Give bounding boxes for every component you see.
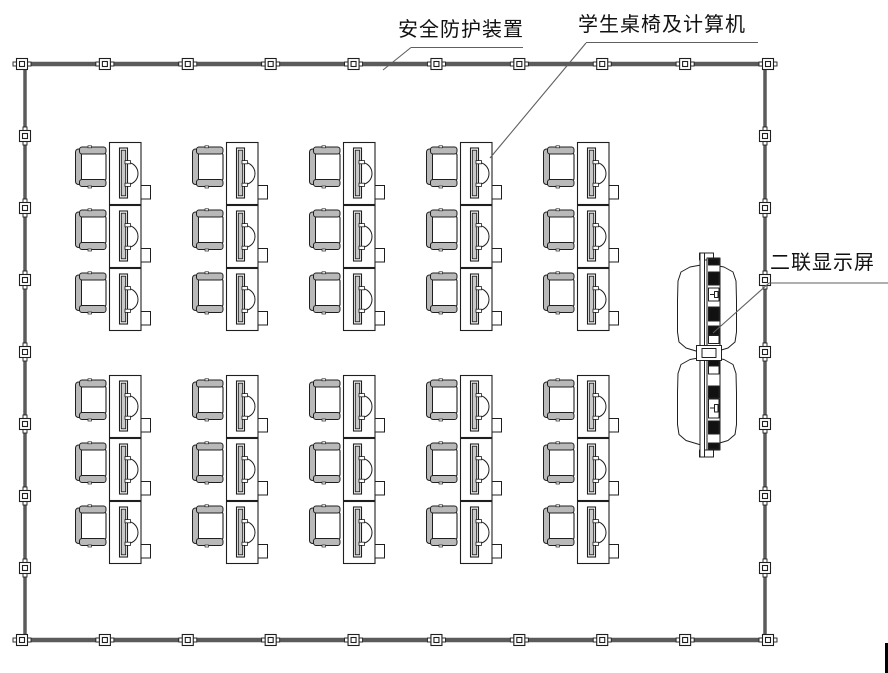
wall-post xyxy=(262,59,280,70)
desk-unit xyxy=(427,439,502,501)
wall-post xyxy=(179,635,197,646)
floor-plan-drawing xyxy=(0,0,888,673)
desk-unit xyxy=(427,376,502,438)
desk-unit xyxy=(76,502,151,564)
label-dual-display-screen: 二联显示屏 xyxy=(770,251,875,274)
wall-post xyxy=(510,59,528,70)
desk-unit xyxy=(193,439,268,501)
desk-unit xyxy=(544,206,619,268)
desk-unit xyxy=(193,143,268,205)
desk-unit xyxy=(193,269,268,331)
label-safety-protection-device: 安全防护装置 xyxy=(398,18,524,41)
label-student-desks-computers: 学生桌椅及计算机 xyxy=(578,13,746,36)
wall-post xyxy=(13,59,31,70)
desk-unit xyxy=(544,439,619,501)
wall-post xyxy=(13,635,31,646)
desk-unit xyxy=(310,376,385,438)
desk-unit xyxy=(193,376,268,438)
wall-post xyxy=(510,635,528,646)
floor-plan-page: 安全防护装置 学生桌椅及计算机 二联显示屏 xyxy=(0,0,888,673)
wall-post xyxy=(20,559,31,577)
wall-post xyxy=(760,487,771,505)
desk-unit xyxy=(76,143,151,205)
wall-post xyxy=(760,343,771,361)
desk-unit xyxy=(310,143,385,205)
wall-post xyxy=(593,59,611,70)
desk-unit xyxy=(310,502,385,564)
wall-post xyxy=(759,59,777,70)
desk-unit xyxy=(310,206,385,268)
wall-post xyxy=(96,59,114,70)
wall-post xyxy=(760,415,771,433)
wall-post xyxy=(20,271,31,289)
wall-post xyxy=(427,59,445,70)
wall-post xyxy=(676,59,694,70)
wall-post xyxy=(760,559,771,577)
desk-unit xyxy=(310,269,385,331)
desk-unit xyxy=(427,143,502,205)
desk-unit xyxy=(76,439,151,501)
wall-post xyxy=(759,635,777,646)
desk-unit xyxy=(544,376,619,438)
desk-unit xyxy=(544,269,619,331)
wall-post xyxy=(262,635,280,646)
desk-unit xyxy=(310,439,385,501)
wall-post xyxy=(20,199,31,217)
desk-unit xyxy=(193,206,268,268)
dual-display-screen xyxy=(678,253,737,457)
wall-post xyxy=(345,59,363,70)
wall-post xyxy=(760,127,771,145)
wall-post xyxy=(593,635,611,646)
desk-unit xyxy=(544,502,619,564)
desk-unit xyxy=(76,206,151,268)
wall-post xyxy=(760,199,771,217)
wall-post xyxy=(20,343,31,361)
desk-unit xyxy=(427,502,502,564)
desk-unit xyxy=(427,206,502,268)
wall-post xyxy=(179,59,197,70)
wall-post xyxy=(20,127,31,145)
wall-post xyxy=(20,415,31,433)
desk-unit xyxy=(427,269,502,331)
leader-student-desks xyxy=(490,43,758,159)
wall-post xyxy=(20,487,31,505)
leader-dual-display xyxy=(713,283,888,333)
wall-post xyxy=(96,635,114,646)
desk-unit xyxy=(544,143,619,205)
wall-post xyxy=(427,635,445,646)
desk-unit xyxy=(193,502,268,564)
student-desk-grid xyxy=(76,143,619,564)
desk-unit xyxy=(76,269,151,331)
desk-unit xyxy=(76,376,151,438)
wall-post xyxy=(676,635,694,646)
annotation-leaders xyxy=(383,43,888,334)
wall-post xyxy=(345,635,363,646)
leader-safety-device xyxy=(383,48,523,71)
